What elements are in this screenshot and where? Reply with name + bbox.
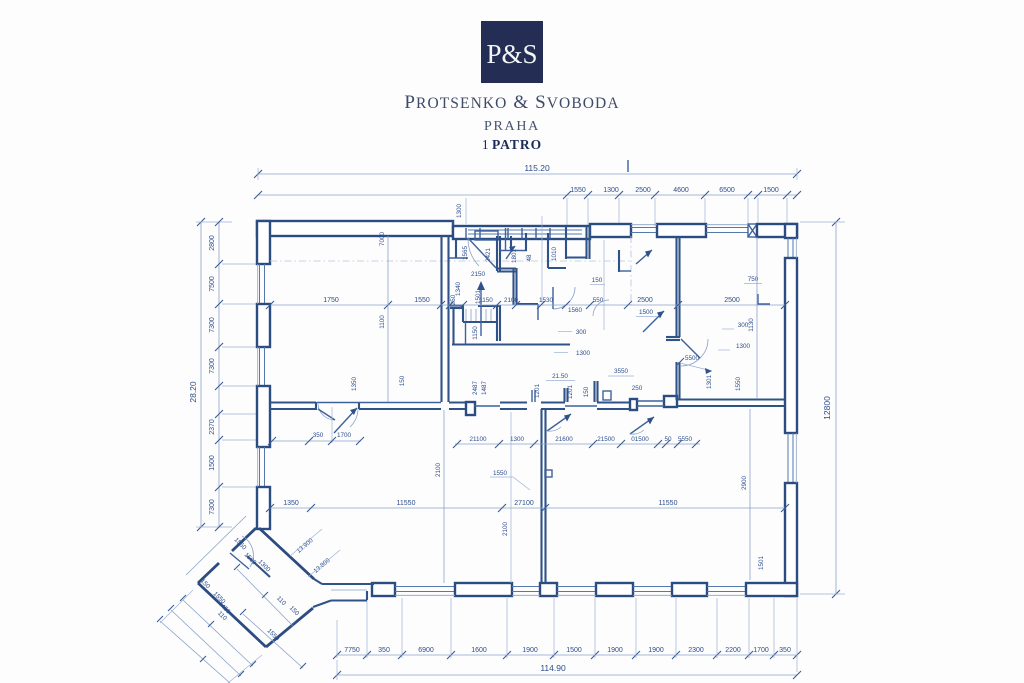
svg-text:11550: 11550 xyxy=(397,500,416,507)
svg-text:300: 300 xyxy=(576,329,587,336)
svg-text:21600: 21600 xyxy=(555,436,573,443)
svg-text:2200: 2200 xyxy=(725,647,741,654)
svg-text:P&S: P&S xyxy=(486,39,537,69)
svg-text:150: 150 xyxy=(592,277,603,284)
svg-text:1600: 1600 xyxy=(471,647,487,654)
svg-text:350: 350 xyxy=(313,432,324,439)
svg-text:1150: 1150 xyxy=(472,326,479,340)
svg-text:350: 350 xyxy=(378,647,390,654)
svg-text:350: 350 xyxy=(779,647,791,654)
svg-text:2500: 2500 xyxy=(724,297,740,304)
svg-text:1750: 1750 xyxy=(323,297,339,304)
svg-text:7300: 7300 xyxy=(209,499,216,515)
svg-text:PROTSENKO & SVOBODA: PROTSENKO & SVOBODA xyxy=(404,92,619,113)
svg-text:1560: 1560 xyxy=(568,307,583,314)
svg-text:1550: 1550 xyxy=(570,187,586,194)
svg-text:6500: 6500 xyxy=(719,187,735,194)
svg-text:1565: 1565 xyxy=(462,246,469,261)
svg-text:1300: 1300 xyxy=(510,436,525,443)
svg-text:1201: 1201 xyxy=(567,385,574,400)
svg-text:3550: 3550 xyxy=(614,368,629,375)
svg-text:21.50: 21.50 xyxy=(552,373,568,380)
svg-text:2800: 2800 xyxy=(209,235,216,251)
svg-text:150: 150 xyxy=(399,375,406,386)
svg-text:1300: 1300 xyxy=(456,204,463,219)
svg-text:2370: 2370 xyxy=(209,419,216,435)
svg-text:1900: 1900 xyxy=(522,647,538,654)
svg-text:1501: 1501 xyxy=(758,556,765,571)
svg-text:1500: 1500 xyxy=(763,187,779,194)
svg-text:2300: 2300 xyxy=(688,647,704,654)
svg-text:1500: 1500 xyxy=(639,309,654,316)
svg-text:2100: 2100 xyxy=(504,297,519,304)
svg-text:1300: 1300 xyxy=(603,187,619,194)
svg-text:1900: 1900 xyxy=(648,647,664,654)
svg-text:50: 50 xyxy=(664,436,672,443)
svg-text:6900: 6900 xyxy=(418,647,434,654)
svg-text:1550: 1550 xyxy=(414,297,430,304)
svg-text:2500: 2500 xyxy=(637,297,653,304)
svg-text:2100: 2100 xyxy=(502,522,509,537)
svg-text:1487: 1487 xyxy=(481,381,488,396)
svg-text:7000: 7000 xyxy=(379,232,386,247)
svg-text:1301: 1301 xyxy=(706,375,713,390)
svg-text:21500: 21500 xyxy=(597,436,615,443)
svg-text:1010: 1010 xyxy=(551,247,558,262)
svg-text:7500: 7500 xyxy=(209,276,216,292)
svg-text:1700: 1700 xyxy=(753,647,769,654)
svg-text:1100: 1100 xyxy=(379,315,386,329)
svg-text:2150: 2150 xyxy=(471,271,486,278)
svg-text:1201: 1201 xyxy=(534,384,541,399)
svg-text:4600: 4600 xyxy=(673,187,689,194)
svg-text:2487: 2487 xyxy=(472,381,479,396)
svg-text:1340: 1340 xyxy=(455,282,462,297)
svg-text:7300: 7300 xyxy=(209,317,216,333)
svg-text:5500: 5500 xyxy=(685,355,700,362)
svg-text:1700: 1700 xyxy=(337,432,352,439)
svg-text:114.90: 114.90 xyxy=(540,663,566,673)
svg-text:27100: 27100 xyxy=(514,500,534,507)
svg-text:01500: 01500 xyxy=(631,436,649,443)
svg-text:2500: 2500 xyxy=(635,187,651,194)
svg-text:2900: 2900 xyxy=(741,476,748,491)
svg-text:1900: 1900 xyxy=(607,647,623,654)
svg-text:28.20: 28.20 xyxy=(188,381,198,403)
svg-text:1550: 1550 xyxy=(493,470,508,477)
svg-text:1500: 1500 xyxy=(566,647,582,654)
svg-text:1801: 1801 xyxy=(511,249,518,264)
svg-text:550: 550 xyxy=(593,297,604,304)
svg-text:1300: 1300 xyxy=(576,350,591,357)
svg-text:115.20: 115.20 xyxy=(524,163,550,173)
svg-text:250: 250 xyxy=(632,385,643,392)
svg-text:1350: 1350 xyxy=(351,377,358,392)
svg-text:1 PATRO: 1 PATRO xyxy=(482,137,542,152)
svg-text:1500: 1500 xyxy=(209,455,216,471)
svg-text:1550: 1550 xyxy=(735,377,742,392)
svg-text:2100: 2100 xyxy=(435,463,442,478)
svg-text:21100: 21100 xyxy=(469,436,487,443)
svg-text:PRAHA: PRAHA xyxy=(484,119,540,134)
svg-text:150: 150 xyxy=(583,386,590,397)
svg-text:1130: 1130 xyxy=(748,318,755,332)
svg-text:48: 48 xyxy=(526,254,533,262)
svg-text:1350: 1350 xyxy=(283,500,299,507)
svg-text:1501: 1501 xyxy=(475,290,482,305)
svg-text:7750: 7750 xyxy=(344,647,360,654)
svg-text:1300: 1300 xyxy=(736,343,751,350)
svg-text:11550: 11550 xyxy=(659,500,678,507)
svg-text:7300: 7300 xyxy=(209,358,216,374)
svg-text:1530: 1530 xyxy=(539,297,554,304)
svg-text:5550: 5550 xyxy=(678,436,693,443)
svg-text:2421: 2421 xyxy=(485,248,492,263)
svg-text:12800: 12800 xyxy=(822,396,832,420)
